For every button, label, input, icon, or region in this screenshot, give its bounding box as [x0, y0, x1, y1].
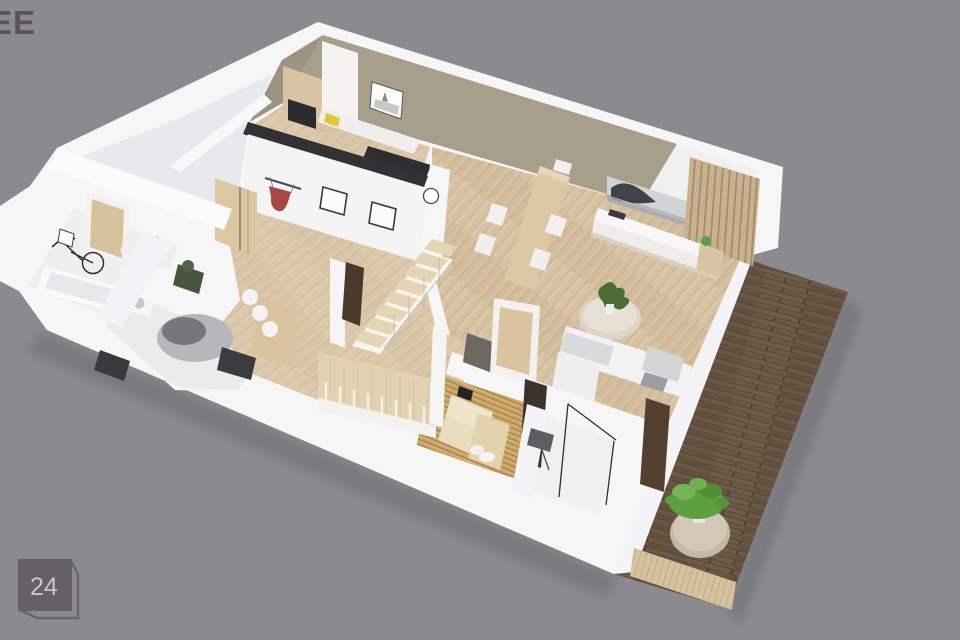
svg-text:24: 24 [30, 573, 58, 601]
svg-text:EE: EE [0, 4, 36, 41]
